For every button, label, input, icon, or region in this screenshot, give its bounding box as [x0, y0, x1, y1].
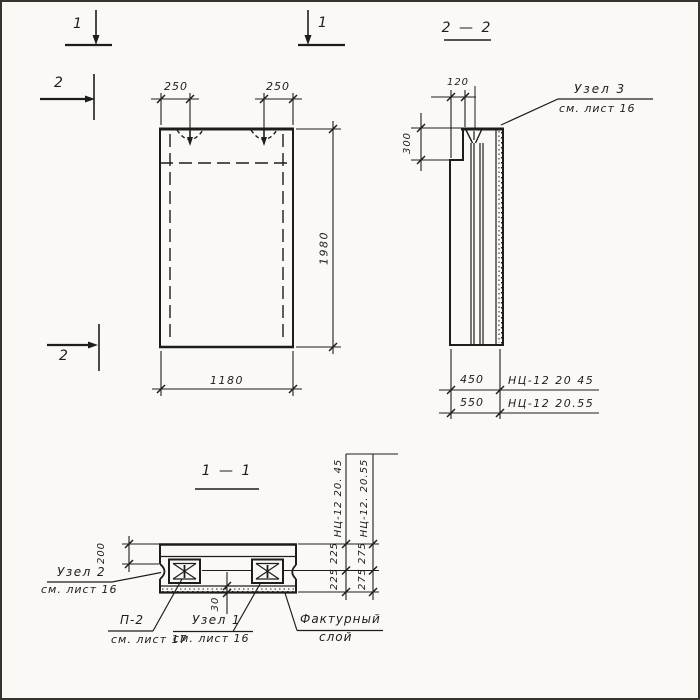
node3-sheet-ref: см. лист 16: [559, 103, 635, 114]
section-1-1-title: 1 — 1: [195, 464, 259, 478]
dim-225-bottom: 225: [330, 567, 340, 589]
section-cut-marker-2-top: [40, 74, 95, 120]
facing-layer-callout-line2: слой: [319, 631, 352, 643]
node1-sheet-ref: см. лист 16: [173, 633, 249, 644]
dim-120-offset: 120: [445, 78, 471, 88]
node2-sheet-ref: см. лист 16: [41, 584, 117, 595]
front-view-dimensions: [151, 93, 341, 396]
section-2-2-dimensions: [411, 90, 599, 419]
drawing-sheet: 1 1 2 2 2 — 2 1 — 1 250 250 1980 1180 12…: [0, 0, 700, 700]
dim-300-step: 300: [403, 132, 413, 154]
section-cut-marker-2-bottom: [47, 324, 99, 371]
dim-1180-width: 1180: [205, 375, 249, 386]
cut-1-label-left: 1: [73, 17, 83, 31]
dim-30-facing: 30: [211, 597, 221, 612]
dim-1980-height: 1980: [319, 231, 330, 265]
dim-275-bottom: 275: [358, 567, 368, 589]
node3-callout: Узел 3: [574, 83, 626, 95]
panel-mark-550: НЦ-12 20.55: [508, 398, 594, 409]
cut-2-label-top: 2: [54, 76, 64, 90]
section-2-2-outline: [450, 86, 504, 345]
lifting-loop-left: [177, 129, 203, 146]
panel-mark-col2: НЦ-12. 20.55: [360, 459, 370, 538]
panel-mark-col1: НЦ-12 20. 45: [334, 459, 344, 538]
node1-callout: Узел 1: [192, 614, 241, 626]
keyway-right: [252, 560, 283, 584]
dim-250-right: 250: [263, 81, 293, 92]
cut-1-label-right: 1: [318, 16, 328, 30]
keyway-left: [169, 560, 200, 584]
p2-callout: П-2: [120, 614, 144, 626]
node2-callout: Узел 2: [57, 566, 106, 578]
dim-250-left: 250: [161, 81, 191, 92]
facing-layer-callout-line1: Фактурный: [300, 613, 381, 625]
section-2-2-title: 2 — 2: [440, 21, 494, 35]
dim-550-thickness: 550: [457, 397, 487, 408]
dim-450-thickness: 450: [457, 374, 487, 385]
cut-2-label-bottom: 2: [59, 349, 69, 363]
dim-275-top: 275: [358, 542, 368, 564]
front-view-outline: [159, 129, 294, 347]
panel-mark-450: НЦ-12 20 45: [508, 375, 594, 386]
dim-225-top: 225: [330, 542, 340, 564]
lifting-loop-right: [251, 129, 277, 146]
dim-200-rib: 200: [97, 542, 107, 564]
